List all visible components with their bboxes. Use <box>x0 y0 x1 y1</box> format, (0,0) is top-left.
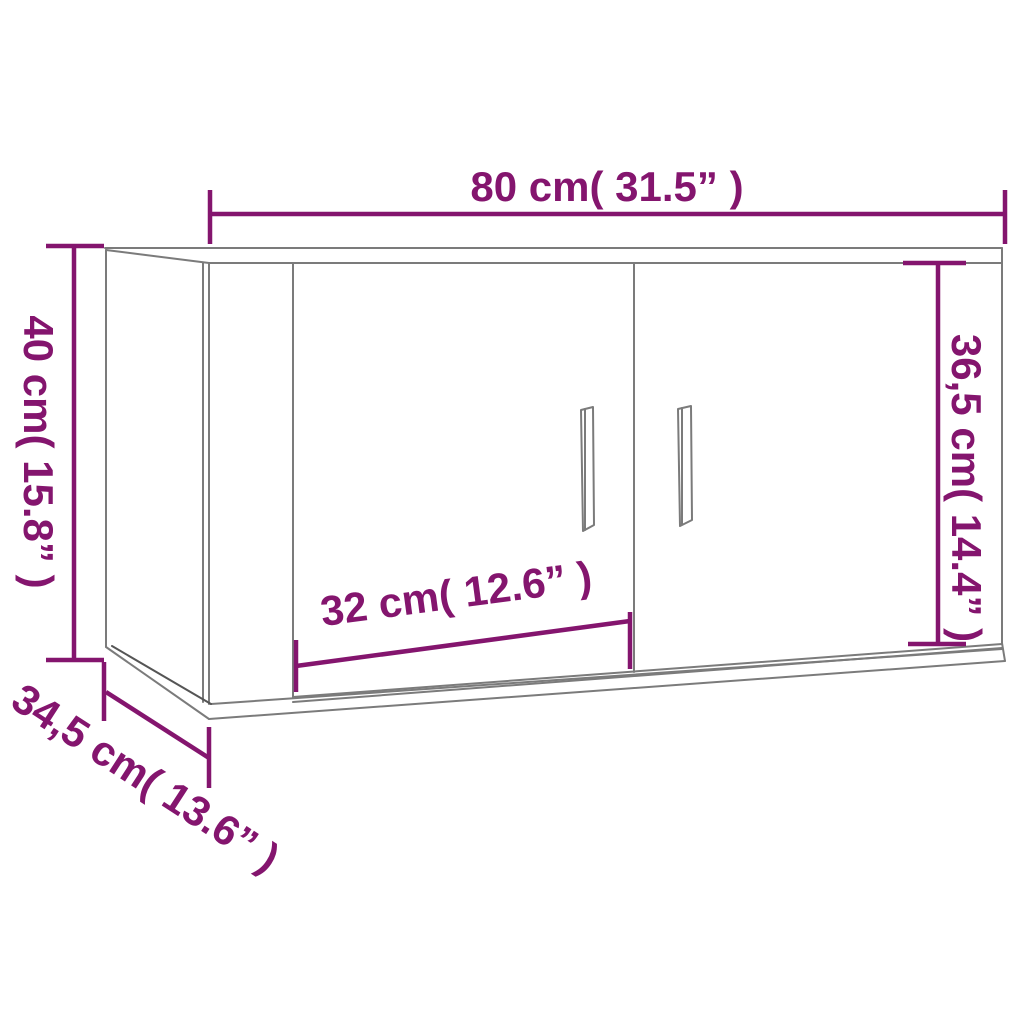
depth-dimension: 34,5 cm( 13.6” ) <box>4 662 288 881</box>
left-door-handle <box>581 407 594 531</box>
height-dimension-label: 40 cm( 15.8” ) <box>15 315 62 588</box>
cabinet-drawing <box>105 248 1005 719</box>
door-height-dimension-label: 36,5 cm( 14.4” ) <box>943 334 990 642</box>
product-dimension-diagram: 80 cm( 31.5” ) 40 cm( 15.8” ) 36,5 cm( 1… <box>0 0 1024 1024</box>
left-side-top-slant <box>106 250 209 263</box>
door-width-dimension-label: 32 cm( 12.6” ) <box>318 552 595 635</box>
side-bottom-inner-edge <box>112 646 211 704</box>
diagram-canvas: 80 cm( 31.5” ) 40 cm( 15.8” ) 36,5 cm( 1… <box>0 0 1024 1024</box>
door-width-dimension: 32 cm( 12.6” ) <box>296 552 630 692</box>
height-dimension: 40 cm( 15.8” ) <box>15 246 104 660</box>
dimension-annotations: 80 cm( 31.5” ) 40 cm( 15.8” ) 36,5 cm( 1… <box>4 163 1005 881</box>
depth-dimension-label: 34,5 cm( 13.6” ) <box>4 674 288 881</box>
width-dimension-label: 80 cm( 31.5” ) <box>470 163 743 210</box>
width-dimension: 80 cm( 31.5” ) <box>210 163 1005 244</box>
bottom-band-bottom <box>209 661 1005 719</box>
bottom-band-right-cap <box>1002 643 1005 661</box>
door-height-dimension: 36,5 cm( 14.4” ) <box>903 263 990 644</box>
right-door-handle <box>678 406 692 526</box>
side-bottom-outer-edge <box>106 647 209 719</box>
bottom-band-top <box>211 649 1002 704</box>
